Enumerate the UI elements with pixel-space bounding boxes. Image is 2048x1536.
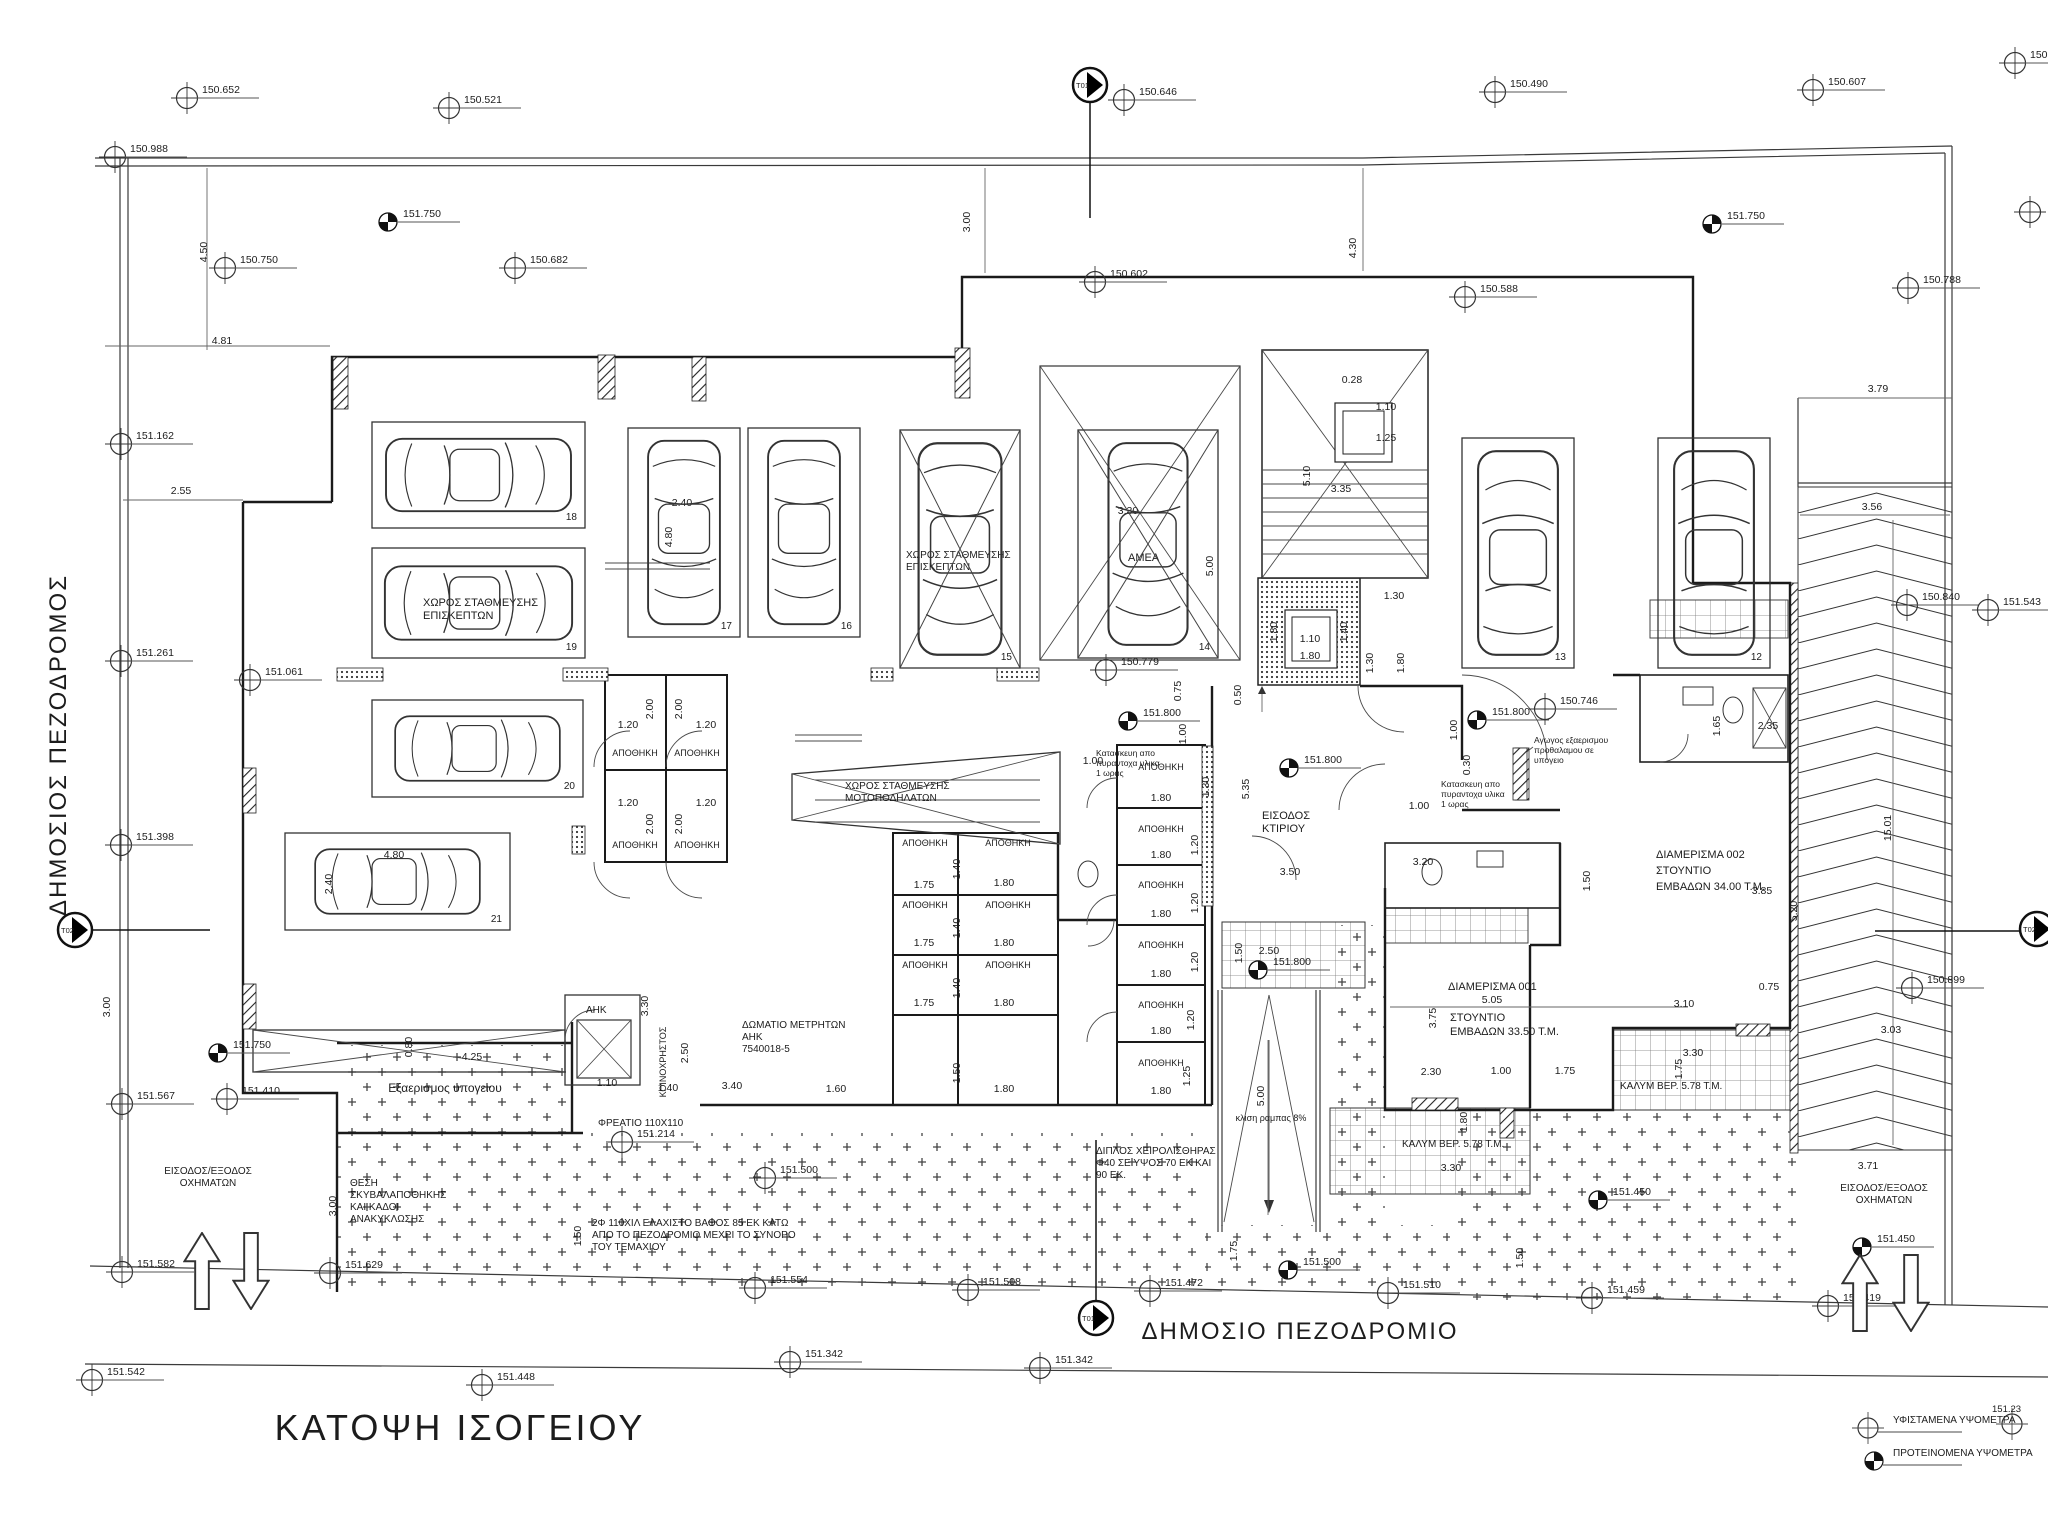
stall-number: 19 (566, 642, 578, 653)
survey-value: 150.788 (1923, 274, 1961, 286)
room-label: ΑΠΟΘΗΚΗ (902, 960, 948, 970)
dim-label: 1.00 (1177, 724, 1189, 745)
kitchen-counter-002 (1650, 600, 1788, 638)
section-marker-T01: T01 (1073, 68, 1107, 218)
bathroom-apt001 (1385, 843, 1560, 908)
dim-label: 3.35 (1331, 483, 1352, 495)
stall-number: 21 (491, 914, 503, 925)
survey-point-proposed: 151.750 (209, 1039, 290, 1062)
parking-stall-15: 15 (900, 430, 1020, 668)
survey-value: 151.543 (2003, 596, 2041, 608)
dim-label: 1.80 (1268, 622, 1280, 643)
survey-point-existing: 150.652 (171, 82, 259, 114)
dim-label: 0.75 (1759, 981, 1780, 993)
dim-label: 1.80 (994, 997, 1015, 1009)
parking-stall-13: 13 (1462, 438, 1574, 668)
room-label: ΑΠΟΘΗΚΗ (902, 838, 948, 848)
survey-value: 151.629 (345, 1259, 383, 1271)
room-label: ΔΩΜΑΤΙΟ ΜΕΤΡΗΤΩΝΑΗΚ7540018-5 (742, 1020, 845, 1055)
dim-label: 1.80 (1458, 1112, 1470, 1133)
survey-point-existing: 150.988 (99, 141, 187, 173)
parking-stall-16: 16 (748, 428, 860, 637)
room-label: ΑΠΟΘΗΚΗ (1138, 762, 1184, 772)
covered-veranda-right (1613, 1030, 1790, 1110)
section-marker-id: T01 (1082, 1314, 1095, 1323)
room-label: ΑΠΟΘΗΚΗ (1138, 824, 1184, 834)
survey-value: 151.162 (136, 430, 174, 442)
survey-value: 151.450 (1613, 1186, 1651, 1198)
dim-label: 1.80 (1300, 650, 1321, 662)
room-label: Αγωγος εξαερισμουπροθαλαμου σευπογειο (1534, 735, 1609, 765)
room-label: ΑΠΟΘΗΚΗ (985, 900, 1031, 910)
room-label: ΣΤΟΥΝΤΙΟΕΜΒΑΔΩΝ 33.50 Τ.Μ. (1450, 1012, 1559, 1038)
section-marker-id: T02 (61, 926, 74, 935)
dim-label: 2.00 (673, 699, 685, 720)
street-label-bottom: ΔΗΜΟΣΙΟ ΠΕΖΟΔΡΟΜΙΟ (1141, 1318, 1458, 1345)
room-label: Κατασκευη αποπυραντοχα υλικα1 ωρας (1441, 779, 1505, 809)
dim-label: 1.80 (1151, 1025, 1172, 1037)
dim-label: 1.80 (994, 937, 1015, 949)
dim-label: 3.20 (1413, 856, 1434, 868)
arrow-down-icon (1893, 1255, 1928, 1331)
survey-point-existing: 150.607 (1797, 74, 1885, 106)
dim-label: 1.50 (1233, 943, 1245, 964)
room-label: ΚΑΛΥΜ ΒΕΡ. 5.78 Τ.Μ. (1402, 1139, 1504, 1150)
room-label: ΕΙΣΟΔΟΣΚΤΙΡΙΟΥ (1262, 810, 1310, 835)
survey-point-existing: 151.410 (211, 1083, 299, 1115)
dim-label: 5.35 (1240, 779, 1252, 800)
survey-value: 150.588 (1480, 283, 1518, 295)
dim-label: 3.56 (1862, 501, 1883, 513)
survey-value: 150.490 (1510, 78, 1548, 90)
stall-number: 14 (1199, 642, 1211, 653)
dim-label: 1.30 (1384, 590, 1405, 602)
room-label: ΕΙΣΟΔΟΣ/ΕΞΟΔΟΣΟΧΗΜΑΤΩΝ (1840, 1183, 1928, 1206)
survey-value: 151.750 (403, 208, 441, 220)
parking-stall-14: 14 (1078, 430, 1218, 658)
survey-point-existing (2014, 196, 2046, 228)
parking-stall-20: 20 (372, 700, 583, 797)
survey-point-existing: 150.521 (433, 92, 521, 124)
survey-value: 151.567 (137, 1090, 175, 1102)
dim-label: 2.50 (679, 1043, 691, 1064)
dim-label: 5.20 (1788, 901, 1800, 922)
survey-point-existing: 151.261 (105, 645, 193, 677)
survey-value: 151.342 (805, 1348, 843, 1360)
survey-point-existing: 151.162 (105, 428, 193, 460)
dim-label: 5.00 (1204, 556, 1216, 577)
dim-label: 1.40 (951, 918, 963, 939)
survey-value: 151.342 (1055, 1354, 1093, 1366)
dim-label: 4.50 (198, 242, 210, 263)
dim-label: 4.80 (663, 527, 675, 548)
room-label: ΔΙΑΜΕΡΙΣΜΑ 002ΣΤΟΥΝΤΙΟΕΜΒΑΔΩΝ 34.00 Τ.Μ. (1656, 849, 1765, 893)
room-label: ΔΙΑΜΕΡΙΣΜΑ 001 (1448, 981, 1537, 993)
survey-value: 151.582 (137, 1258, 175, 1270)
dim-label: 1.00 (1448, 720, 1460, 741)
dim-label: 3.71 (1858, 1160, 1879, 1172)
stall-number: 12 (1751, 652, 1763, 663)
survey-point-existing: 151.342 (1024, 1352, 1112, 1384)
dim-label: 1.80 (1395, 653, 1407, 674)
room-label: ΑΠΟΘΗΚΗ (1138, 1058, 1184, 1068)
dim-label: 1.20 (618, 719, 639, 731)
dim-label: 1.75 (1228, 1241, 1240, 1262)
dim-label: 5.05 (1482, 994, 1503, 1006)
dim-label: 1.50 (951, 1063, 963, 1084)
dim-label: 0.30 (1461, 755, 1473, 776)
dim-label: 1.30 (1364, 653, 1376, 674)
survey-value: 151.800 (1143, 707, 1181, 719)
dim-label: 0.80 (403, 1037, 415, 1058)
dim-label: 1.80 (1151, 792, 1172, 804)
survey-value: 150.750 (240, 254, 278, 266)
survey-value: 150.682 (530, 254, 568, 266)
dim-label: 2.00 (673, 814, 685, 835)
room-label: ΧΩΡΟΣ ΣΤΑΘΜΕΥΣΗΣΜΟΤΟΠΟΔΗΛΑΤΩΝ (845, 781, 950, 804)
parking-stall-21: 21 (285, 833, 510, 930)
dim-label: 4.81 (212, 335, 233, 347)
floor-plan-page: 150.652150.521150.646150.490150.607150.7… (0, 0, 2048, 1536)
dim-label: 1.20 (696, 719, 717, 731)
dim-label: 1.20 (618, 797, 639, 809)
survey-value: 151.214 (637, 1128, 675, 1140)
stall-number: 18 (566, 512, 578, 523)
dim-label: 1.00 (1409, 800, 1430, 812)
room-label: κλιση ραμπας 8% (1236, 1113, 1307, 1123)
survey-value: 150.521 (464, 94, 502, 106)
survey-value: 150.988 (130, 143, 168, 155)
survey-value: 150.646 (1139, 86, 1177, 98)
dim-label: 5.00 (1255, 1086, 1267, 1107)
section-marker-id: T02 (2023, 925, 2036, 934)
survey-value: 151.459 (1607, 1284, 1645, 1296)
survey-point-existing: 150.779 (1090, 654, 1178, 686)
survey-value: 151.554 (770, 1274, 808, 1286)
section-marker-id: T01 (1076, 81, 1089, 90)
survey-value: 151.750 (1727, 210, 1765, 222)
survey-value: 151.750 (233, 1039, 271, 1051)
survey-point-existing: 151.543 (1972, 594, 2048, 626)
dim-label: 1.80 (1151, 908, 1172, 920)
section-marker-T02: T02 (58, 913, 210, 947)
dim-label: 3.79 (1868, 383, 1889, 395)
stall-number: 13 (1555, 652, 1567, 663)
survey-point-existing: 151.398 (105, 829, 193, 861)
street-label-left: ΔΗΜΟΣΙΟΣ ΠΕΖΟΔΡΟΜΟΣ (45, 574, 72, 916)
dim-label: 1.80 (1151, 849, 1172, 861)
dim-label: 3.10 (1674, 998, 1695, 1010)
dim-label: 4.80 (384, 849, 405, 861)
room-label: ΚΟΙΝΟΧΡΗΣΤΟΣ (658, 1026, 668, 1097)
survey-value: 151.261 (136, 647, 174, 659)
corner-survey-value: 151.23 (1992, 1404, 2021, 1415)
room-label: Εξαερισμος υπογειου (388, 1081, 502, 1095)
side-ramp (1798, 487, 1952, 1150)
dim-label: 1.30 (1200, 777, 1212, 798)
dim-label: 1.75 (914, 879, 935, 891)
dim-label: 4.30 (1347, 238, 1359, 259)
stall-number: 17 (721, 621, 733, 632)
survey-value: 151.500 (780, 1164, 818, 1176)
survey-point-existing: 151.061 (234, 664, 322, 696)
dim-label: 0.50 (1232, 685, 1244, 706)
survey-point-existing: 151.582 (106, 1256, 194, 1288)
dim-label: 1.50 (1514, 1248, 1526, 1269)
survey-value: 151.800 (1273, 956, 1311, 968)
survey-point-existing: 150.79 (1999, 47, 2048, 79)
dim-label: 3.00 (101, 997, 113, 1018)
stall-number: 15 (1001, 652, 1013, 663)
room-label: ΧΩΡΟΣ ΣΤΑΘΜΕΥΣΗΣΕΠΙΣΚΕΠΤΩΝ (423, 597, 538, 622)
legend: ΥΦΙΣΤΑΜΕΝΑ ΥΨΟΜΕΤΡΑ ΠΡΟΤΕΙΝΟΜΕΝΑ ΥΨΟΜΕΤΡ… (1852, 1404, 2033, 1470)
room-label: ΦΡΕΑΤΙΟ 110Χ110 (598, 1118, 684, 1129)
room-label: ΑΠΟΘΗΚΗ (612, 748, 658, 758)
room-label: ΑΠΟΘΗΚΗ (674, 748, 720, 758)
survey-point-existing: 150.646 (1108, 84, 1196, 116)
survey-point-existing: 151.567 (106, 1088, 194, 1120)
floor-plan-canvas: 150.652150.521150.646150.490150.607150.7… (0, 0, 2048, 1536)
survey-point-existing: 151.448 (466, 1369, 554, 1401)
dim-label: 0.28 (1342, 374, 1363, 386)
arrow-down-icon (233, 1233, 268, 1309)
survey-value: 151.800 (1492, 706, 1530, 718)
legend-proposed-label: ΠΡΟΤΕΙΝΟΜΕΝΑ ΥΨΟΜΕΤΡΑ (1893, 1448, 2033, 1459)
survey-point-proposed: 151.800 (1280, 754, 1361, 777)
survey-value: 151.472 (1165, 1277, 1203, 1289)
survey-value: 151.508 (983, 1276, 1021, 1288)
dim-label: 1.65 (1711, 716, 1723, 737)
dim-label: 3.00 (327, 1196, 339, 1217)
parking-stall-17: 17 (628, 428, 740, 637)
dim-label: 1.60 (826, 1083, 847, 1095)
survey-value: 150.840 (1922, 591, 1960, 603)
dim-label: 3.03 (1881, 1024, 1902, 1036)
dim-label: 2.50 (1259, 945, 1280, 957)
kitchen-counter-001 (1385, 908, 1528, 943)
survey-value: 151.061 (265, 666, 303, 678)
dim-label: 1.50 (572, 1226, 584, 1247)
dim-label: 2.35 (1758, 720, 1779, 732)
page-title: ΚΑΤΟΨΗ ΙΣΟΓΕΙΟΥ (275, 1407, 646, 1448)
wc-fixture (1078, 861, 1098, 887)
dim-label: 1.20 (696, 797, 717, 809)
survey-value: 151.542 (107, 1366, 145, 1378)
dim-label: 1.50 (1581, 871, 1593, 892)
survey-point-existing: 150.682 (499, 252, 587, 284)
dim-label: 1.25 (1181, 1066, 1193, 1087)
survey-point-existing: 150.490 (1479, 76, 1567, 108)
survey-point-existing: 150.588 (1449, 281, 1537, 313)
dim-label: 2.00 (644, 814, 656, 835)
room-label: ΑΠΟΘΗΚΗ (985, 838, 1031, 848)
dim-label: 1.80 (1151, 968, 1172, 980)
survey-value: 150.652 (202, 84, 240, 96)
dim-label: 1.75 (1555, 1065, 1576, 1077)
dim-label: 1.75 (914, 997, 935, 1009)
survey-point-existing: 151.542 (76, 1364, 164, 1396)
dim-label: 1.80 (1151, 1085, 1172, 1097)
survey-point-existing: 150.602 (1079, 266, 1167, 298)
dim-label: 3.30 (639, 996, 651, 1017)
room-label: ΕΙΣΟΔΟΣ/ΕΞΟΔΟΣΟΧΗΜΑΤΩΝ (164, 1166, 252, 1189)
dim-label: 1.20 (1185, 1010, 1197, 1031)
room-label: ΑΜΕΑ (1128, 552, 1160, 564)
survey-value: 151.448 (497, 1371, 535, 1383)
dim-label: 1.20 (1189, 835, 1201, 856)
dim-label: 1.25 (1376, 432, 1397, 444)
dim-label: 1.20 (1189, 952, 1201, 973)
dim-label: 1.80 (994, 1083, 1015, 1095)
dim-label: 3.00 (961, 212, 973, 233)
basement-ramp (1218, 990, 1320, 1232)
survey-point-existing: 150.788 (1892, 272, 1980, 304)
survey-value: 151.800 (1304, 754, 1342, 766)
room-label: ΑΠΟΘΗΚΗ (902, 900, 948, 910)
survey-value: 151.398 (136, 831, 174, 843)
survey-value: 150.602 (1110, 268, 1148, 280)
stall-number: 20 (564, 781, 576, 792)
survey-value: 151.510 (1403, 1279, 1441, 1291)
survey-value: 151.410 (242, 1085, 280, 1097)
dim-label: 2.55 (171, 485, 192, 497)
dim-label: 1.20 (1189, 893, 1201, 914)
survey-value: 150.746 (1560, 695, 1598, 707)
parking-stall-12: 12 (1658, 438, 1770, 668)
survey-value: 150.899 (1927, 974, 1965, 986)
dim-label: 3.40 (722, 1080, 743, 1092)
dim-label: 1.00 (1491, 1065, 1512, 1077)
stall-number: 16 (841, 621, 853, 632)
room-label: ΑΠΟΘΗΚΗ (674, 840, 720, 850)
arrow-up-icon (184, 1233, 219, 1309)
dim-label: 4.25 (462, 1051, 483, 1063)
room-label: ΚΑΛΥΜ ΒΕΡ. 5.78 Τ.Μ. (1620, 1081, 1722, 1092)
dim-label: 1.10 (1300, 633, 1321, 645)
dim-label: 1.80 (994, 877, 1015, 889)
dim-label: 1.75 (914, 937, 935, 949)
room-label: ΑΠΟΘΗΚΗ (1138, 940, 1184, 950)
survey-point-proposed: 151.750 (379, 208, 460, 231)
dim-label: 3.30 (1683, 1047, 1704, 1059)
room-label: ΑΠΟΘΗΚΗ (1138, 880, 1184, 890)
survey-value: 150.79 (2030, 49, 2048, 61)
survey-point-proposed: 151.750 (1703, 210, 1784, 233)
survey-value: 150.607 (1828, 76, 1866, 88)
dim-label: 3.75 (1427, 1008, 1439, 1029)
survey-value: 151.500 (1303, 1256, 1341, 1268)
dim-label: 2.30 (1421, 1066, 1442, 1078)
dim-label: 1.75 (1673, 1059, 1685, 1080)
dim-label: 2.00 (644, 699, 656, 720)
dim-label: 1.40 (951, 978, 963, 999)
dim-label: 1.10 (597, 1077, 618, 1089)
dim-label: 1.40 (951, 859, 963, 880)
room-label: ΑΠΟΘΗΚΗ (1138, 1000, 1184, 1010)
room-label: ΑΠΟΘΗΚΗ (612, 840, 658, 850)
dim-label: 1.40 (1338, 622, 1350, 643)
survey-point-proposed: 151.450 (1853, 1233, 1934, 1256)
dim-label: 5.10 (1301, 466, 1313, 487)
dim-label: 3.50 (1280, 866, 1301, 878)
parking-stall-18: 18 (372, 422, 585, 528)
room-label: ΑΠΟΘΗΚΗ (985, 960, 1031, 970)
survey-point-existing: 151.342 (774, 1346, 862, 1378)
dim-label: 3.30 (1441, 1162, 1462, 1174)
dim-label: 0.75 (1172, 681, 1184, 702)
room-label: ΑΗΚ (586, 1005, 607, 1016)
survey-value: 151.450 (1877, 1233, 1915, 1245)
survey-point-existing: 150.750 (209, 252, 297, 284)
dim-label: 1.10 (1376, 401, 1397, 413)
dim-label: 15.01 (1882, 815, 1894, 841)
